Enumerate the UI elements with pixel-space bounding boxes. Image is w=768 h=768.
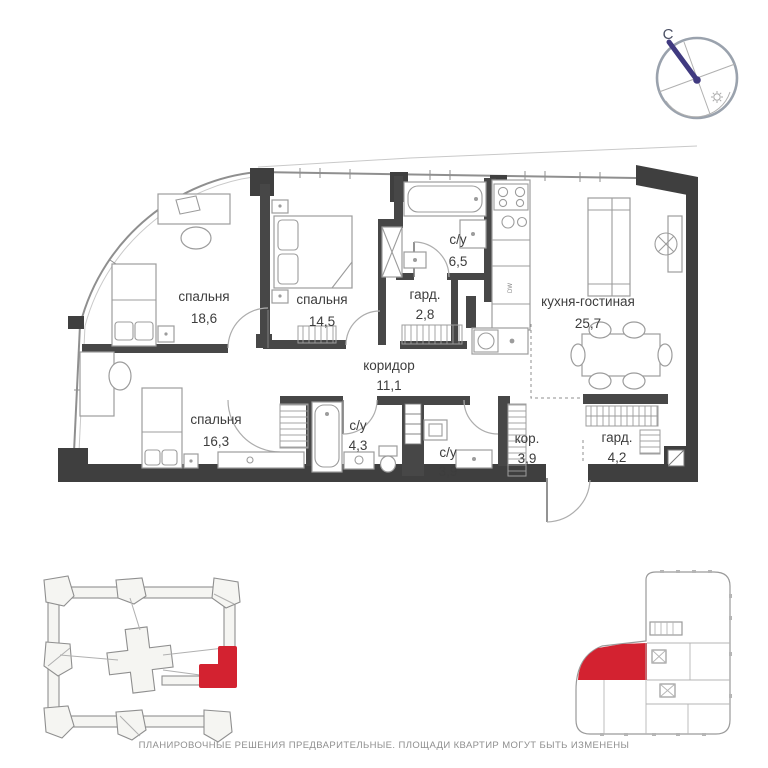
- label-kitchen-living: кухня-гостиная 25,7: [541, 294, 635, 331]
- svg-text:спальня: спальня: [190, 412, 241, 427]
- slab-edge: [258, 146, 697, 167]
- svg-text:коридор: коридор: [363, 358, 415, 373]
- label-bathroom-3: с/у 3,9: [439, 445, 458, 479]
- svg-text:3,9: 3,9: [439, 464, 458, 479]
- bathroom3-fixtures: [424, 420, 492, 468]
- svg-text:4,2: 4,2: [608, 450, 627, 465]
- svg-text:6,5: 6,5: [449, 254, 468, 269]
- svg-text:11,1: 11,1: [376, 378, 401, 393]
- label-bedroom-2: спальня 14,5: [296, 292, 347, 329]
- svg-text:с/у: с/у: [439, 445, 457, 460]
- svg-text:2,8: 2,8: [416, 307, 435, 322]
- svg-text:16,3: 16,3: [203, 434, 229, 449]
- label-bedroom-1: спальня 18,6: [178, 289, 229, 326]
- dishwasher-label: DW: [508, 283, 514, 293]
- site-location-marker: [201, 648, 235, 686]
- label-wardrobe-1: гард. 2,8: [410, 287, 441, 322]
- compass-needle: [669, 42, 697, 80]
- north-label: С: [663, 26, 674, 43]
- bedroom3-furniture: [80, 352, 308, 468]
- svg-text:3,9: 3,9: [518, 451, 537, 466]
- label-bedroom-3: спальня 16,3: [190, 412, 241, 449]
- floor-plan: DW: [58, 146, 698, 522]
- site-plan: [44, 576, 240, 742]
- floor-key-plan: [576, 570, 732, 736]
- svg-text:4,3: 4,3: [349, 438, 368, 453]
- entry-door: [547, 478, 590, 522]
- sun-icon: [711, 91, 723, 103]
- label-bathroom-2: с/у 4,3: [349, 418, 368, 453]
- svg-text:с/у: с/у: [349, 418, 367, 433]
- svg-text:с/у: с/у: [449, 232, 467, 247]
- compass: С: [657, 26, 737, 118]
- svg-text:гард.: гард.: [602, 430, 633, 445]
- bathroom2-fixtures: [312, 402, 397, 472]
- svg-text:спальня: спальня: [296, 292, 347, 307]
- disclaimer-text: ПЛАНИРОВОЧНЫЕ РЕШЕНИЯ ПРЕДВАРИТЕЛЬНЫЕ. П…: [0, 740, 768, 751]
- svg-text:спальня: спальня: [178, 289, 229, 304]
- label-wardrobe-2: гард. 4,2: [602, 430, 633, 465]
- floor-plan-page: С: [0, 0, 768, 768]
- svg-text:кор.: кор.: [515, 431, 540, 446]
- plan-canvas: С: [0, 0, 768, 768]
- svg-text:25,7: 25,7: [575, 316, 601, 331]
- svg-text:гард.: гард.: [410, 287, 441, 302]
- svg-text:14,5: 14,5: [309, 314, 335, 329]
- label-bathroom-1: с/у 6,5: [449, 232, 468, 269]
- svg-text:18,6: 18,6: [191, 311, 217, 326]
- bathroom1-fixtures: [404, 182, 486, 268]
- key-apartment-highlight: [578, 643, 647, 680]
- label-corridor: коридор 11,1: [363, 358, 415, 393]
- svg-text:кухня-гостиная: кухня-гостиная: [541, 294, 635, 309]
